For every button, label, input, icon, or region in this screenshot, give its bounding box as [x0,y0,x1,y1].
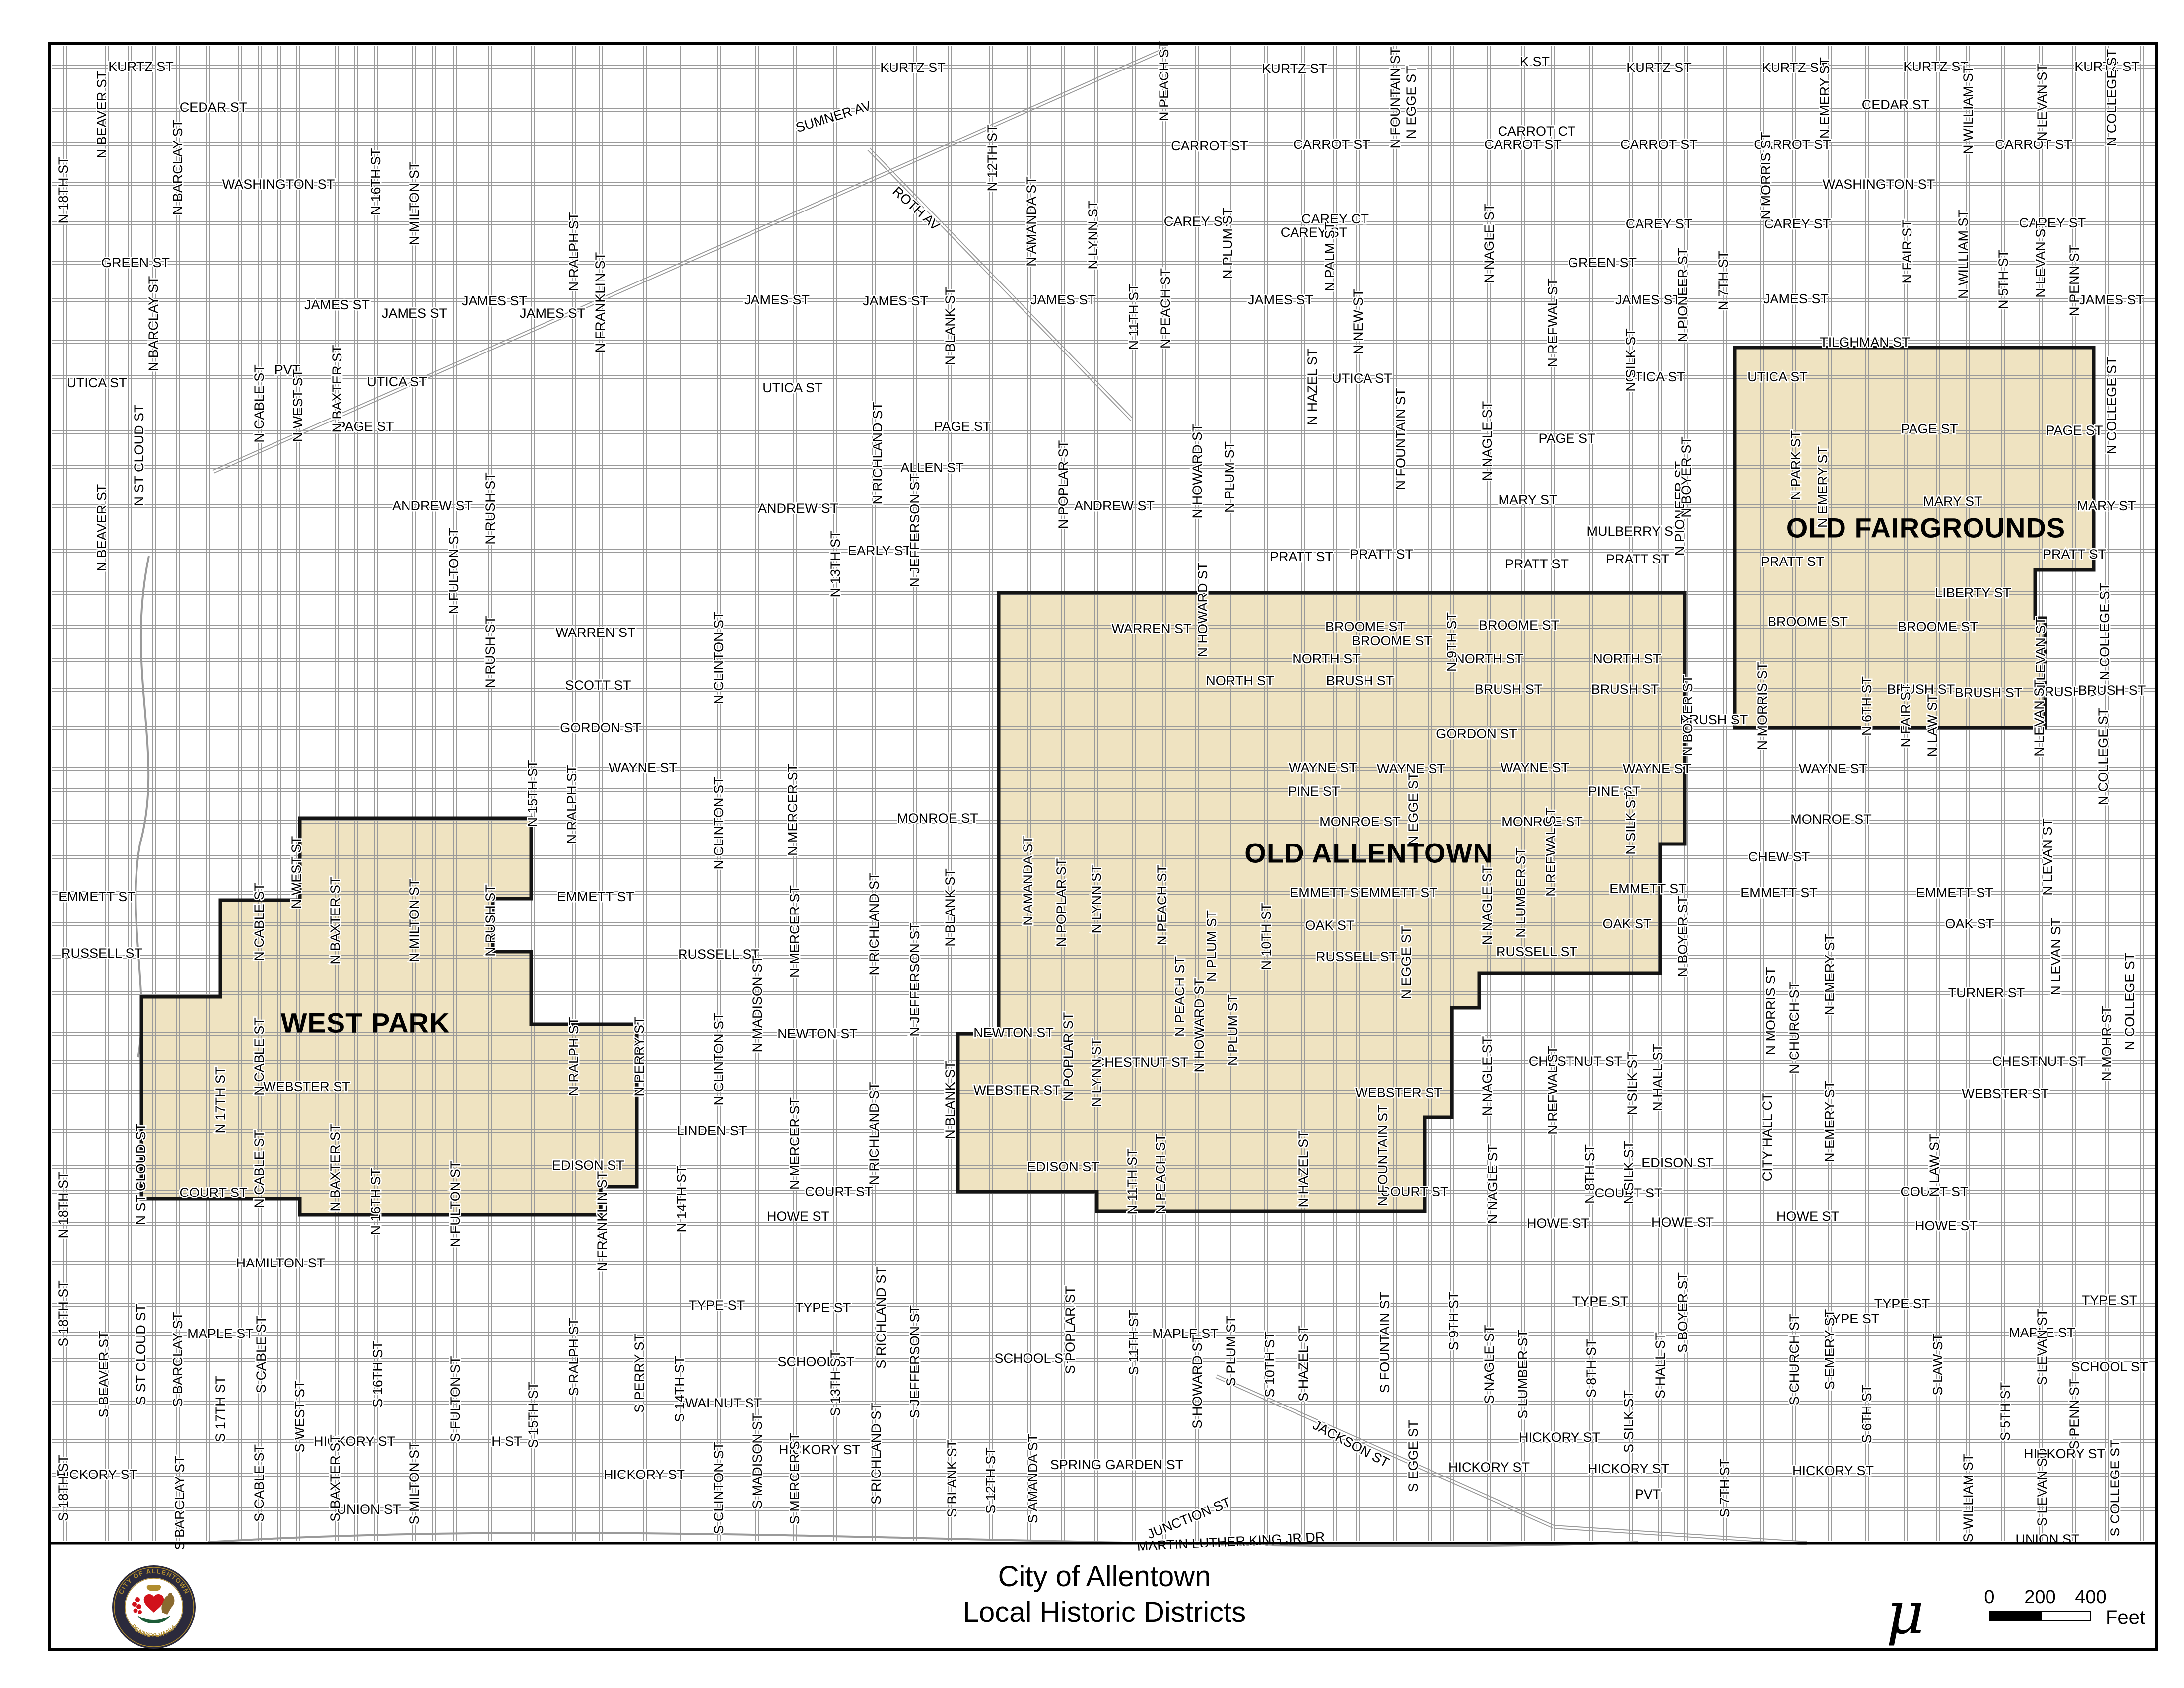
street-label: S 16TH ST [370,1341,385,1407]
street-label: N LEVAN ST [2035,64,2049,141]
street-label: N RICHLAND ST [867,872,882,975]
street-label: S LEVAN ST [2035,1450,2049,1526]
street-label: N LYNN ST [1089,864,1104,933]
street-label: N MORRIS ST [1763,967,1778,1055]
street-label: N REFWAL ST [1545,278,1560,367]
street-label: COURT ST [179,1185,247,1200]
street-label: BROOME ST [1352,633,1432,648]
street-label: JAMES ST [1615,292,1681,307]
street-label: N MORRIS ST [1755,662,1770,750]
street-label: N COLLEGE ST [2097,583,2112,681]
street-label: HOWE ST [1915,1218,1978,1233]
street-label: N HOWARD ST [1190,424,1205,519]
street-label: N EGGE ST [1404,66,1419,139]
street-label: N PLUM ST [1222,441,1237,513]
street-label: PRATT ST [2043,547,2106,562]
street-label: S 18TH ST [56,1280,70,1347]
street-label: N LYNN ST [1086,200,1100,269]
street-label: NORTH ST [1206,673,1274,688]
street-label: EMMETT ST [1609,881,1687,896]
street-label: S WILLIAM ST [1961,1454,1976,1543]
scale-tick-0: 0 [1984,1587,1994,1608]
street-label: BRUSH ST [2078,683,2146,698]
street-label: N RALPH ST [566,212,581,291]
street-label: MAPLE ST [187,1326,254,1341]
street-label: N BOYER ST [1679,436,1694,518]
street-label: S CABLE ST [252,1444,267,1522]
street-label: S BARCLAY ST [172,1455,187,1550]
street-label: HICKORY ST [314,1434,395,1449]
street-label: S PLUM ST [1224,1316,1238,1387]
street-label: MULBERRY ST [1586,524,1681,539]
street-label: N ST CLOUD ST [132,404,146,506]
street-label: COURT ST [805,1184,873,1199]
street-label: GREEN ST [101,255,170,270]
street-label: HICKORY ST [604,1467,685,1482]
street-label: NORTH ST [1455,651,1523,666]
street-label: N LYNN ST [1089,1038,1104,1107]
street-label: N FOUNTAIN ST [1393,388,1408,490]
street-label: S 7TH ST [1717,1459,1732,1518]
street-label: N EMERY ST [1822,934,1837,1015]
street-label: BRUSH ST [1591,682,1659,697]
scale-unit-label: Feet [2106,1607,2145,1629]
street-label: N HALL ST [1650,1044,1665,1111]
street-label: N NAGLE ST [1480,1036,1495,1116]
street-label: N RICHLAND ST [870,402,885,504]
scale-tick-400: 400 [2075,1587,2106,1608]
street-label: S 11TH ST [1126,1310,1141,1375]
street-label: N FOUNTAIN ST [1375,1105,1390,1206]
street-label: N PIONEER ST [1675,248,1690,343]
street-label: OAK ST [1602,916,1651,931]
street-label: PAGE ST [1901,422,1958,436]
city-seal-logo: CITY OF ALLENTOWN PENNSYLVANIA [112,1565,196,1649]
street-label: PRATT ST [1270,549,1333,564]
street-label: N NAGLE ST [1482,204,1497,283]
street-label: PAGE ST [934,419,991,434]
street-label: N 11TH ST [1126,283,1141,350]
street-label: UTICA ST [367,374,427,389]
street-label: KURTZ ST [1903,59,1969,74]
street-label: RUSSELL ST [1496,944,1577,959]
street-label: S FOUNTAIN ST [1377,1292,1392,1393]
street-label: N PARK ST [1788,430,1803,500]
map-title-line1: City of Allentown [707,1559,1501,1595]
street-label: N LEVAN ST [2032,679,2047,757]
street-label: PAGE ST [1538,431,1595,446]
street-label: N FULTON ST [446,528,461,615]
street-label: N MERCER ST [785,764,800,856]
street-label: EDISON ST [1641,1155,1714,1170]
street-label: S EMERY ST [1822,1309,1837,1390]
street-label: JAMES ST [1248,292,1313,307]
street-label: N NAGLE ST [1480,865,1495,945]
street-label: N SILK ST [1621,1141,1636,1204]
street-label: N REFWAL ST [1543,807,1558,897]
street-label: S PERRY ST [632,1334,647,1413]
street-label: N BOYER ST [1680,675,1695,756]
street-label: N WEST ST [289,836,304,909]
scale-bar: 0 200 400 Feet [1980,1587,2169,1622]
street-label: N 18TH ST [56,156,70,223]
street-label: CITY HALL CT [1760,1093,1774,1182]
street-label: HOWE ST [767,1209,829,1224]
street-label: SPRING GARDEN ST [1050,1457,1184,1472]
street-label: JAMES ST [520,306,585,321]
street-label: PRATT ST [1606,552,1669,566]
street-label: CHESTNUT ST [1992,1054,2086,1069]
street-label: TYPE ST [795,1300,851,1315]
street-label: N 11TH ST [1125,1148,1140,1214]
street-label: S MILTON ST [407,1441,422,1524]
street-label: H ST [491,1434,522,1449]
street-label: EMMETT ST [1916,885,1993,900]
street-label: WEBSTER ST [1962,1086,2049,1101]
street-label: N 14TH ST [674,1165,689,1232]
street-label: CARROT ST [1995,137,2072,152]
street-label: S 17TH ST [213,1376,228,1442]
street-label: N 16TH ST [368,148,383,215]
street-label: N PERRY ST [632,1016,647,1096]
street-label: CAREY ST [1764,216,1831,231]
street-label: N FRANKLIN ST [593,252,608,353]
street-label: ANDREW ST [758,501,838,516]
street-label: N BAXTER ST [328,1124,342,1211]
street-label: N CLINTON ST [711,611,726,704]
street-label: GREEN ST [1568,255,1637,270]
street-label: S FULTON ST [448,1356,463,1442]
street-label: N CLINTON ST [711,1012,726,1105]
street-label: HOWE ST [1651,1215,1714,1230]
street-label: WASHINGTON ST [222,177,335,192]
street-label: N RALPH ST [564,765,579,844]
scale-bar-segment-empty [2040,1611,2091,1621]
street-label: N 17TH ST [213,1066,228,1133]
street-label: N NAGLE ST [1485,1144,1500,1224]
street-label: N 13TH ST [828,530,843,597]
street-label: PINE ST [1288,784,1340,799]
street-label: N BLANK ST [943,1061,957,1139]
street-label: N PLUM ST [1220,208,1235,279]
street-label: MONROE ST [1319,814,1401,829]
street-label: HICKORY ST [1519,1430,1600,1445]
street-label: S BEAVER ST [96,1331,111,1417]
street-label: N BLANK ST [943,868,957,947]
street-label: WASHINGTON ST [1823,177,1935,192]
street-label: JAMES ST [382,306,447,321]
street-label: TYPE ST [1874,1296,1930,1311]
street-label: N CABLE ST [252,1017,267,1096]
street-label: N AMANDA ST [1024,176,1039,267]
street-label: N COLLEGE ST [2104,357,2119,455]
street-label: N BARCLAY ST [170,120,185,215]
street-label: MARY ST [1498,492,1557,507]
street-label: N ST CLOUD ST [134,1123,148,1225]
street-label: N 8TH ST [1582,1144,1597,1204]
street-label: BRUSH ST [1326,673,1394,688]
street-label: TYPE ST [689,1298,745,1313]
street-label: N BOYER ST [1675,896,1690,977]
street-label: S COLLEGE ST [2108,1439,2122,1536]
street-label: CAREY ST [2019,215,2086,230]
street-label: BROOME ST [1325,619,1406,634]
street-label: N MERCER ST [787,1097,802,1190]
street-label: N PEACH ST [1172,956,1187,1037]
street-label: JAMES ST [1030,292,1096,307]
street-label: N CHURCH ST [1787,982,1802,1074]
street-label: WAYNE ST [1623,761,1691,776]
street-label: N RICHLAND ST [867,1082,882,1185]
street-label: N PLUM ST [1226,994,1240,1066]
street-label: PVT [1635,1487,1661,1502]
street-label: EMMETT ST [1290,885,1367,900]
street-label: S LAW ST [1930,1333,1945,1395]
street-label: S POPLAR ST [1063,1286,1078,1374]
street-label: HOWE ST [1527,1216,1589,1231]
street-label: N BLANK ST [943,287,957,365]
street-label: SCHOOL ST [777,1354,854,1369]
street-label: WAYNE ST [1289,760,1357,775]
street-label: S 10TH ST [1262,1331,1277,1398]
street-label: N LEVAN ST [2040,818,2055,896]
street-label: N JEFFERSON ST [907,922,922,1037]
street-label: UTICA ST [1747,369,1808,384]
street-label: S BAXTER ST [328,1434,342,1522]
street-label: S WEST ST [292,1380,307,1452]
street-label: MARY ST [2077,498,2136,513]
street-label: N 12TH ST [985,124,1000,191]
street-label: S NAGLE ST [1482,1325,1497,1404]
street-label: BRUSH ST [1475,682,1543,697]
street-label: KURTZ ST [880,60,946,75]
district-label-west-park: WEST PARK [281,1007,450,1039]
street-label: N BEAVER ST [94,71,109,159]
street-label: CARROT ST [1171,139,1248,153]
street-label: CAREY ST [1281,225,1348,240]
scale-bar-segment-filled [1989,1611,2040,1621]
street-label: N 9TH ST [1444,612,1459,672]
street-label: N WEST ST [290,369,305,442]
street-label: N FULTON ST [448,1161,463,1248]
street-label: S 14TH ST [672,1356,687,1422]
street-label: N MORRIS ST [1758,132,1773,219]
street-label: WAYNE ST [609,760,677,775]
street-label: S SILK ST [1621,1390,1636,1453]
street-label: OAK ST [1305,918,1354,933]
street-label: UTICA ST [67,375,127,390]
street-label: WARREN ST [1112,621,1192,636]
street-label: SCHOOL ST [994,1351,1071,1366]
street-label: N LUMBER ST [1513,847,1528,938]
street-label: RUSSELL ST [678,947,759,962]
street-label: BROOME ST [1768,614,1848,629]
street-label: S PENN ST [2067,1379,2082,1450]
street-label: KURTZ ST [108,59,174,74]
street-label: CAREY ST [1626,216,1693,231]
street-label: N 15TH ST [525,760,540,827]
street-label: JACKSON ST [1310,1417,1392,1470]
street-label: TURNER ST [1948,985,2025,1000]
street-label: N MILTON ST [407,162,422,246]
street-label: N PEACH ST [1157,41,1171,121]
street-label: CARROT ST [1484,137,1562,152]
street-label: LINDEN ST [677,1124,747,1138]
street-label: N 6TH ST [1859,676,1874,736]
street-label: N CLINTON ST [711,776,726,869]
street-label: N FRANKLIN ST [595,1171,610,1272]
street-label: N PALM ST [1322,222,1337,292]
street-label: S MADISON ST [750,1413,765,1509]
street-label: HICKORY ST [1448,1460,1530,1475]
street-label: HOWE ST [1776,1209,1839,1224]
street-label: N CABLE ST [252,364,267,443]
map-canvas: KURTZ STKURTZ STKURTZ STK STKURTZ STKURT… [0,0,2184,1688]
street-label: N SILK ST [1623,328,1638,392]
street-label: S 13TH ST [828,1350,843,1416]
street-label: N COLLEGE ST [2122,953,2137,1051]
street-label: N 7TH ST [1716,251,1731,310]
street-label: S 15TH ST [526,1382,541,1448]
street-label: N HAZEL ST [1305,348,1320,425]
street-label: S EGGE ST [1406,1420,1421,1492]
street-label: N JEFFERSON ST [907,473,922,587]
street-label: S 6TH ST [1859,1385,1874,1444]
street-label: NORTH ST [1292,651,1361,666]
street-label: TILGHMAN ST [1820,335,1910,350]
street-label: N SILK ST [1623,791,1638,855]
street-label: BROOME ST [1479,618,1559,633]
street-label: N 10TH ST [1259,903,1274,970]
street-label: GORDON ST [560,720,641,735]
street-label: CARROT CT [1498,124,1575,139]
street-label: WEBSTER ST [1355,1085,1442,1100]
street-label: N MERCER ST [787,885,802,978]
street-label: N NEW ST [1351,289,1365,354]
street-label: N RUSH ST [483,884,498,957]
street-label: N 5TH ST [1996,250,2011,309]
street-label: S AMANDA ST [1025,1434,1040,1523]
street-label: N MOHR ST [2099,1006,2114,1081]
scale-tick-200: 200 [2024,1587,2055,1608]
street-label: S ST CLOUD ST [134,1304,148,1405]
street-label: MAPLE ST [1152,1326,1219,1341]
street-label: N BAXTER ST [328,876,342,964]
street-label: N COLLEGE ST [2104,49,2119,147]
street-label: N PEACH ST [1153,1134,1168,1214]
street-label: N REFWAL ST [1545,1046,1560,1135]
street-label: N COLLEGE ST [2096,708,2111,806]
street-label: JAMES ST [2079,292,2144,307]
street-label: S 18TH ST [56,1455,70,1521]
street-label: N POPLAR ST [1054,858,1069,947]
street-label: N MADISON ST [750,955,765,1052]
street-label: MONROE ST [1501,814,1583,829]
street-label: N BEAVER ST [94,484,109,572]
street-label: HAMILTON ST [236,1256,325,1270]
street-label: KURTZ ST [1626,60,1692,75]
street-label: S RICHLAND ST [869,1403,884,1505]
street-label: TYPE ST [1572,1294,1629,1309]
street-label: S BOYER ST [1675,1272,1690,1353]
street-label: WAYNE ST [1501,760,1569,775]
street-label: EDISON ST [552,1158,624,1173]
street-label: EMMETT ST [557,889,634,904]
street-label: MONROE ST [897,811,978,826]
street-label: CHESTNUT ST [1095,1055,1189,1070]
street-label: N HOWARD ST [1192,978,1207,1073]
street-label: EMMETT ST [1360,885,1437,900]
street-label: CARROT ST [1620,137,1698,152]
street-label: SCOTT ST [565,678,631,693]
street-label: N NAGLE ST [1480,401,1495,481]
street-label: EARLY ST [848,543,911,558]
street-label: N HAZEL ST [1296,1130,1311,1207]
street-label: NEWTON ST [973,1025,1054,1040]
street-label: N EMERY ST [1822,1081,1837,1162]
street-label: BRUSH ST [1955,685,2023,700]
street-label: JAMES ST [863,293,928,308]
street-label: EMMETT ST [1740,885,1818,900]
street-label: KURTZ ST [1262,61,1327,76]
street-label: UNION ST [337,1502,401,1517]
street-label: RUSSELL ST [61,946,142,961]
street-label: N LAW ST [1925,694,1940,757]
street-label: N WILLIAM ST [1956,210,1971,299]
street-label: ALLEN ST [900,460,964,475]
street-label: WEBSTER ST [973,1083,1061,1098]
map-sheet: KURTZ STKURTZ STKURTZ STK STKURTZ STKURT… [0,0,2184,1688]
street-label: S BLANK ST [945,1440,959,1517]
street-label: N AMANDA ST [1021,836,1035,926]
street-label: N HOWARD ST [1195,563,1210,657]
street-label: N PEACH ST [1158,268,1173,349]
street-label: EDISON ST [1027,1159,1099,1174]
street-label: TYPE ST [2082,1293,2138,1308]
street-label: N FAIR ST [1898,683,1913,747]
street-label: S CHURCH ST [1787,1314,1802,1406]
street-label: K ST [1520,54,1550,69]
street-label: N LEVAN ST [2048,918,2063,995]
scale-bar-ticks: 0 200 400 [1980,1587,2169,1609]
street-label: N SILK ST [1625,1052,1639,1115]
street-label: N RUSH ST [483,616,498,688]
street-label: COURT ST [1380,1184,1448,1199]
street-label: S LUMBER ST [1515,1330,1530,1419]
district-label-old-allentown: OLD ALLENTOWN [1244,838,1493,869]
street-label: RUSSELL ST [1316,949,1397,964]
street-label: S CLINTON ST [711,1442,726,1534]
street-label: JAMES ST [1763,291,1829,306]
street-label: CEDAR ST [180,100,248,115]
street-label: S HOWARD ST [1190,1335,1205,1429]
street-label: SCHOOL ST [2071,1359,2148,1374]
street-label: JAMES ST [304,297,370,312]
street-label: S JEFFERSON ST [907,1305,922,1418]
street-label: NEWTON ST [777,1026,858,1041]
scale-bar-graphic: Feet [1980,1611,2169,1622]
street-label: LIBERTY ST [1935,585,2011,600]
street-label: PRATT ST [1505,557,1569,571]
map-title-block: City of Allentown Local Historic Distric… [707,1559,1501,1630]
street-label: PRATT ST [1350,547,1413,562]
street-label: N LEVAN ST [2033,220,2048,298]
street-label: BROOME ST [1898,619,1978,634]
street-label: N FAIR ST [1900,219,1914,283]
street-label: N EGGE ST [1406,772,1421,845]
street-label: S 8TH ST [1584,1339,1599,1398]
street-label: GORDON ST [1436,726,1517,741]
